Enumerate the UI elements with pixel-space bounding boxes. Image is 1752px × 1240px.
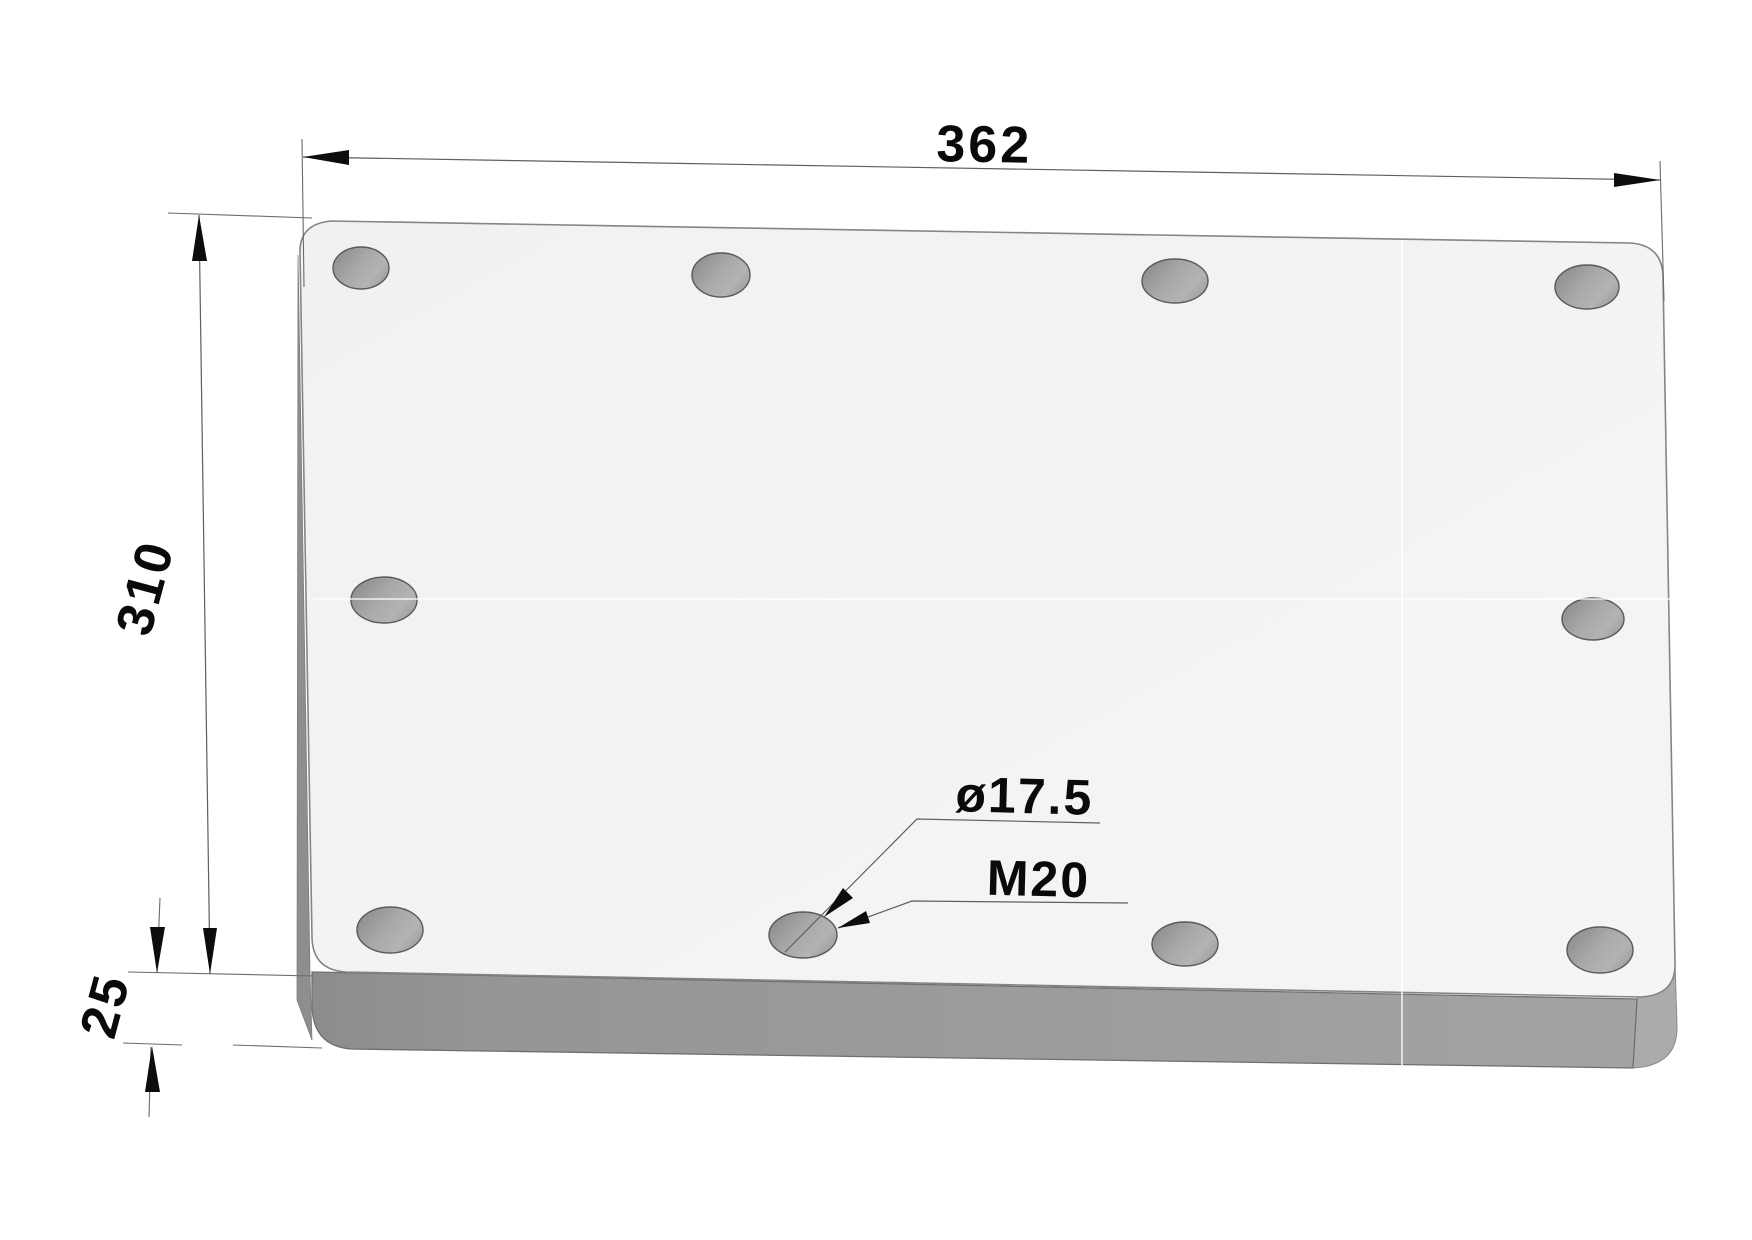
depth-dimension-label: 310 xyxy=(105,534,186,642)
extension-line xyxy=(233,1045,322,1048)
arrowhead-down xyxy=(150,927,165,973)
plate-hole xyxy=(769,912,837,958)
extension-line xyxy=(128,972,314,976)
thickness-dimension-label: 25 xyxy=(69,967,142,1044)
extension-line xyxy=(123,1043,182,1045)
plate-body xyxy=(297,221,1677,1068)
plate-hole xyxy=(333,247,389,289)
plate-drawing-svg: 362 310 25 ø17.5 xyxy=(0,0,1752,1240)
arrowhead-up xyxy=(145,1046,160,1092)
arrowhead-left xyxy=(303,150,349,165)
plate-hole xyxy=(1567,927,1633,973)
arrowhead-top xyxy=(192,215,207,261)
plate-hole xyxy=(1562,598,1624,640)
plate-hole xyxy=(692,253,750,297)
arrowhead-right xyxy=(1614,173,1660,187)
arrowhead-bottom xyxy=(203,928,217,974)
dimension-line xyxy=(199,215,210,974)
technical-drawing-canvas: 362 310 25 ø17.5 xyxy=(0,0,1752,1240)
dimension-depth-310: 310 xyxy=(105,213,314,976)
hole-diameter-label: ø17.5 xyxy=(955,766,1094,826)
width-dimension-label: 362 xyxy=(936,115,1033,175)
plate-hole xyxy=(1555,265,1619,309)
plate-hole xyxy=(1152,922,1218,966)
plate-hole xyxy=(357,907,423,953)
plate-hole xyxy=(351,577,417,623)
thread-label: M20 xyxy=(986,850,1091,909)
plate-hole xyxy=(1142,259,1208,303)
dimension-thickness-25: 25 xyxy=(69,898,322,1117)
extension-line xyxy=(168,213,312,218)
